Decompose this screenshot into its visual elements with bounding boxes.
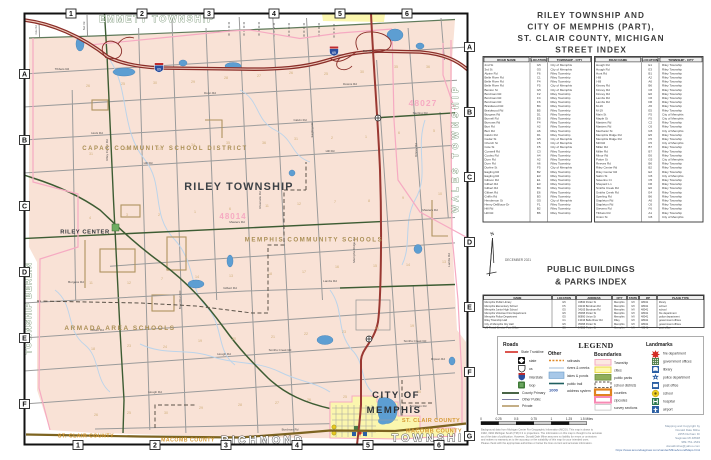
svg-text:Lambs Rd: Lambs Rd	[447, 253, 451, 267]
svg-text:Memphis Junior High School: Memphis Junior High School	[485, 307, 518, 311]
svg-text:2: 2	[158, 213, 160, 217]
svg-text:us: us	[529, 367, 533, 371]
svg-text:Smiths Creek Rd: Smiths Creek Rd	[269, 348, 292, 352]
svg-text:20: 20	[232, 337, 236, 341]
svg-text:public parks: public parks	[614, 376, 632, 380]
svg-text:ADDRESS: ADDRESS	[587, 296, 600, 300]
svg-text:fire department: fire department	[659, 311, 677, 315]
svg-text:0.5: 0.5	[514, 417, 519, 421]
svg-text:Memphis Volunteer Fire Departm: Memphis Volunteer Fire Department	[485, 311, 527, 315]
svg-text:Riley Township Hall: Riley Township Hall	[485, 318, 508, 322]
svg-text:5: 5	[433, 129, 435, 133]
svg-text:Other: Other	[548, 351, 561, 357]
svg-text:G: G	[467, 434, 473, 441]
svg-text:Private: Private	[522, 404, 533, 408]
svg-text:LOCATION: LOCATION	[557, 296, 571, 300]
svg-text:18: 18	[268, 272, 272, 276]
svg-text:48027: 48027	[409, 98, 438, 108]
svg-text:13: 13	[442, 260, 446, 264]
svg-text:Hough Rd: Hough Rd	[217, 352, 231, 356]
svg-text:Memphis: Memphis	[614, 307, 625, 311]
svg-text:MEMPHIS COMMUNITY SCHOOLS: MEMPHIS COMMUNITY SCHOOLS	[245, 237, 383, 244]
svg-text:34130 Bordman Rd: 34130 Bordman Rd	[578, 304, 601, 308]
svg-text:25: 25	[343, 395, 347, 399]
svg-text:TOWNSHIP: TOWNSHIP	[391, 433, 474, 445]
svg-text:school: school	[659, 304, 667, 308]
svg-text:Memphis: Memphis	[614, 325, 625, 329]
svg-text:STREET INDEX: STREET INDEX	[555, 46, 627, 55]
svg-text:14: 14	[406, 263, 410, 267]
svg-text:7: 7	[334, 200, 336, 204]
svg-text:29: 29	[199, 406, 203, 410]
svg-text:11: 11	[89, 281, 93, 285]
svg-text:80890 Union St: 80890 Union St	[578, 315, 596, 319]
svg-text:31: 31	[89, 152, 93, 156]
svg-text:1: 1	[69, 11, 73, 18]
svg-text:NAME: NAME	[514, 296, 522, 300]
svg-text:Lambs Rd: Lambs Rd	[323, 279, 337, 283]
svg-text:21: 21	[271, 335, 275, 339]
svg-text:G5: G5	[562, 307, 566, 311]
svg-text:City of Memphis City Hall: City of Memphis City Hall	[485, 322, 514, 326]
svg-text:government offices: government offices	[659, 322, 682, 326]
svg-text:school districts: school districts	[614, 384, 637, 388]
svg-text:8: 8	[368, 199, 370, 203]
svg-text:1992, 1994 Michigan South (TM): 1992, 1994 Michigan South (TM) 0.3 m pro…	[481, 431, 602, 435]
svg-text:government offices: government offices	[663, 360, 692, 364]
svg-text:30: 30	[164, 411, 168, 415]
svg-text:35: 35	[226, 141, 230, 145]
svg-text:Kinney Rd: Kinney Rd	[414, 143, 418, 157]
svg-text:Memphis Elementary School: Memphis Elementary School	[485, 304, 518, 308]
svg-text:17: 17	[302, 270, 306, 274]
svg-text:4: 4	[89, 216, 91, 220]
svg-text:MACOMB COUNTY: MACOMB COUNTY	[161, 438, 215, 444]
svg-text:Riverside Rd: Riverside Rd	[258, 191, 262, 209]
svg-text:Downs Rd: Downs Rd	[343, 82, 357, 86]
svg-text:G5: G5	[562, 322, 566, 326]
svg-text:G5: G5	[562, 311, 566, 315]
svg-text:5: 5	[338, 11, 342, 18]
svg-text:35095 Potter St: 35095 Potter St	[578, 311, 596, 315]
svg-text:C: C	[22, 204, 27, 211]
svg-text:A: A	[22, 72, 27, 79]
svg-text:4: 4	[295, 443, 299, 450]
svg-text:30: 30	[360, 70, 364, 74]
svg-text:PUBLIC BUILDINGS: PUBLIC BUILDINGS	[547, 264, 635, 274]
svg-text:6: 6	[437, 443, 441, 450]
svg-text:Township: Township	[614, 361, 628, 365]
svg-text:22: 22	[304, 332, 308, 336]
svg-text:F: F	[467, 370, 472, 377]
svg-text:Landmarks: Landmarks	[646, 342, 673, 348]
svg-text:school: school	[659, 307, 667, 311]
svg-text:34165 Bordman Rd: 34165 Bordman Rd	[578, 307, 601, 311]
svg-text:G5: G5	[562, 315, 566, 319]
svg-text:3: 3	[126, 213, 128, 217]
svg-text:15: 15	[373, 264, 377, 268]
svg-text:ST. CLAIR COUNTY, MICHIGAN: ST. CLAIR COUNTY, MICHIGAN	[518, 34, 665, 43]
svg-text:Memphis: Memphis	[614, 304, 625, 308]
svg-text:69: 69	[332, 51, 336, 55]
svg-text:E: E	[467, 305, 472, 312]
svg-text:13016 Belle River Rd: 13016 Belle River Rd	[578, 318, 603, 322]
svg-text:12: 12	[297, 202, 301, 206]
svg-text:G5: G5	[562, 300, 566, 304]
svg-text:13: 13	[229, 274, 233, 278]
svg-text:7: 7	[161, 277, 163, 281]
svg-text:6: 6	[405, 11, 409, 18]
svg-text:23: 23	[127, 344, 131, 348]
svg-text:MI: MI	[632, 315, 635, 319]
svg-text:US Postal Service Post Office: US Postal Service Post Office	[485, 325, 520, 329]
svg-text:6: 6	[229, 207, 231, 211]
svg-text:PLACE TYPE: PLACE TYPE	[672, 296, 689, 300]
svg-text:hospital: hospital	[663, 400, 675, 404]
svg-text:interstate: interstate	[529, 376, 543, 380]
svg-text:18: 18	[91, 347, 95, 351]
svg-text:9: 9	[402, 196, 404, 200]
svg-text:MI: MI	[632, 307, 635, 311]
svg-text:State Trunkline: State Trunkline	[521, 350, 544, 354]
svg-text:36: 36	[262, 141, 266, 145]
svg-text:35095 Potter St: 35095 Potter St	[578, 322, 596, 326]
svg-text:MI: MI	[632, 322, 635, 326]
svg-text:35: 35	[394, 65, 398, 69]
svg-text:counties: counties	[614, 391, 627, 395]
svg-text:26: 26	[289, 71, 293, 75]
svg-text:RILEY TOWNSHIP AND: RILEY TOWNSHIP AND	[537, 11, 645, 20]
svg-text:19: 19	[198, 339, 202, 343]
svg-text:1.5 Miles: 1.5 Miles	[580, 417, 593, 421]
svg-text:24: 24	[375, 326, 379, 330]
svg-text:rivers & creeks: rivers & creeks	[567, 366, 590, 370]
svg-text:27: 27	[275, 401, 279, 405]
svg-text:Boundaries: Boundaries	[594, 352, 622, 358]
svg-text:STATE: STATE	[629, 296, 638, 300]
svg-text:Hill Rd: Hill Rd	[326, 149, 335, 153]
svg-text:Cole Rd: Cole Rd	[35, 25, 38, 35]
svg-text:cities: cities	[614, 369, 622, 373]
svg-text:C1: C1	[562, 318, 566, 322]
svg-text:19: 19	[410, 324, 414, 328]
svg-text:Tibbets Rd: Tibbets Rd	[55, 67, 70, 71]
svg-text:25: 25	[121, 82, 125, 86]
svg-text:CITY OF: CITY OF	[372, 390, 420, 401]
svg-text:Calvin Rd: Calvin Rd	[293, 118, 306, 122]
svg-text:48041: 48041	[641, 315, 649, 319]
svg-text:MI: MI	[632, 325, 635, 329]
svg-text:Burt Rd: Burt Rd	[363, 49, 374, 53]
svg-text:CITY OF MEMPHIS (PART),: CITY OF MEMPHIS (PART),	[527, 23, 654, 32]
svg-text:1: 1	[365, 135, 367, 139]
svg-text:DECEMBER 2021: DECEMBER 2021	[505, 258, 531, 262]
svg-text:34830 Potter St: 34830 Potter St	[578, 300, 596, 304]
svg-text:Please check with the appropri: Please check with the appropriate author…	[481, 441, 593, 445]
svg-text:C: C	[467, 175, 472, 182]
svg-text:state: state	[529, 359, 536, 363]
svg-text:B: B	[22, 138, 27, 145]
svg-text:30: 30	[153, 81, 157, 85]
svg-text:LEGEND: LEGEND	[578, 341, 613, 350]
svg-text:Other Public: Other Public	[522, 398, 541, 402]
svg-text:LOCATION: LOCATION	[643, 58, 658, 62]
svg-text:E: E	[22, 336, 27, 343]
svg-text:0.25: 0.25	[495, 417, 501, 421]
svg-text:ARMADA AREA SCHOOLS: ARMADA AREA SCHOOLS	[64, 325, 175, 332]
svg-text:28: 28	[238, 403, 242, 407]
svg-text:48041: 48041	[641, 322, 649, 326]
svg-text:ST. CLAIR COUNTY: ST. CLAIR COUNTY	[58, 434, 114, 440]
svg-text:school: school	[663, 392, 673, 396]
svg-text:27: 27	[257, 74, 261, 78]
svg-text:B: B	[467, 110, 472, 117]
svg-text:2: 2	[140, 11, 144, 18]
svg-text:Masters Rd: Masters Rd	[422, 208, 438, 212]
svg-text:ZIP: ZIP	[646, 296, 650, 300]
svg-text:Memphis Public Library: Memphis Public Library	[485, 300, 513, 304]
svg-text:Ripson Rd: Ripson Rd	[431, 357, 445, 361]
svg-text:26: 26	[307, 398, 311, 402]
svg-text:zipcodes: zipcodes	[614, 399, 628, 403]
svg-text:RILEY CENTER: RILEY CENTER	[60, 230, 110, 236]
svg-text:24: 24	[163, 345, 167, 349]
svg-text:ROAD NAME: ROAD NAME	[497, 58, 516, 62]
svg-text:25: 25	[324, 72, 328, 76]
svg-text:CITY: CITY	[616, 296, 622, 300]
svg-text:fire department: fire department	[663, 352, 686, 356]
svg-text:48014: 48014	[219, 212, 246, 221]
svg-text:MI: MI	[632, 304, 635, 308]
svg-text:police department: police department	[659, 315, 680, 319]
svg-text:City of Memphis: City of Memphis	[662, 215, 684, 219]
svg-text:4: 4	[272, 11, 276, 18]
svg-text:14: 14	[195, 275, 199, 279]
svg-text:1.25: 1.25	[566, 417, 572, 421]
svg-text:36: 36	[426, 65, 430, 69]
svg-text:Dunn Rd: Dunn Rd	[204, 91, 216, 95]
svg-text:16: 16	[335, 265, 339, 269]
svg-text:Riley Township: Riley Township	[551, 211, 571, 215]
svg-text:Gilbert Rd: Gilbert Rd	[223, 286, 237, 290]
svg-text:0: 0	[480, 417, 482, 421]
svg-text:Sterling Rd: Sterling Rd	[413, 111, 428, 115]
svg-text:F: F	[22, 402, 27, 409]
svg-text:48041: 48041	[641, 304, 649, 308]
svg-text:Eagling Rd: Eagling Rd	[310, 122, 314, 137]
svg-text:public trail: public trail	[567, 382, 583, 386]
svg-text:Hough Rd: Hough Rd	[148, 390, 162, 394]
svg-text:County Primary: County Primary	[522, 391, 546, 395]
svg-text:1: 1	[551, 417, 553, 421]
svg-text:address system: address system	[567, 389, 591, 393]
svg-text:26: 26	[86, 84, 90, 88]
svg-text:& PARKS INDEX: & PARKS INDEX	[555, 277, 627, 287]
svg-text:airport: airport	[663, 408, 673, 412]
svg-text:12: 12	[127, 281, 131, 285]
svg-text:Riley: Riley	[614, 318, 620, 322]
svg-text:post office: post office	[663, 384, 679, 388]
svg-text:D: D	[467, 240, 472, 247]
svg-text:Hill Rd: Hill Rd	[485, 211, 494, 215]
svg-text:library: library	[663, 368, 673, 372]
svg-text:Memphis: Memphis	[614, 311, 625, 315]
svg-text:G5: G5	[562, 325, 566, 329]
svg-text:TOWNSHIP - CITY: TOWNSHIP - CITY	[557, 58, 583, 62]
svg-text:MI: MI	[632, 300, 635, 304]
svg-text:MI: MI	[632, 318, 635, 322]
svg-text:post office: post office	[659, 325, 671, 329]
svg-text:railroads: railroads	[567, 359, 580, 363]
svg-text:48041: 48041	[641, 300, 649, 304]
svg-text:TOWNSHIP - CITY: TOWNSHIP - CITY	[668, 58, 694, 62]
svg-text:48041: 48041	[641, 325, 649, 329]
svg-text:lakes & ponds: lakes & ponds	[567, 374, 589, 378]
svg-text:69: 69	[157, 67, 161, 71]
svg-text:CAPAC COMMUNITY SCHOOL DIS: CAPAC COMMUNITY SCHOOL DISTRICT	[82, 146, 248, 152]
svg-text:Background data from Michigan: Background data from Michigan Center For…	[481, 428, 594, 432]
svg-text:26: 26	[94, 413, 98, 417]
svg-text:28: 28	[224, 76, 228, 80]
svg-text:48041: 48041	[641, 311, 649, 315]
svg-text:D: D	[22, 270, 27, 277]
svg-text:Boardman Rd: Boardman Rd	[178, 290, 182, 309]
svg-text:11: 11	[265, 204, 269, 208]
svg-text:0.75: 0.75	[531, 417, 537, 421]
svg-text:MI: MI	[632, 311, 635, 315]
svg-text:Union St: Union St	[596, 215, 608, 219]
svg-text:Burgess Rd: Burgess Rd	[68, 280, 84, 284]
svg-text:Memphis: Memphis	[614, 315, 625, 319]
svg-text:2: 2	[331, 136, 333, 140]
svg-text:WALES TOWNSHIP: WALES TOWNSHIP	[451, 83, 460, 213]
svg-text:https://www.aroundsaginaw.com/: https://www.aroundsaginaw.com/vander/Mil…	[616, 448, 701, 452]
svg-text:ST. CLAIR COUNTY: ST. CLAIR COUNTY	[402, 418, 460, 424]
svg-text:1000: 1000	[549, 388, 559, 393]
svg-text:5: 5	[366, 443, 370, 450]
svg-text:1: 1	[76, 443, 80, 450]
svg-text:25: 25	[127, 411, 131, 415]
svg-text:29: 29	[191, 80, 195, 84]
svg-text:ROAD NAME: ROAD NAME	[609, 58, 628, 62]
svg-text:G5: G5	[648, 215, 652, 219]
svg-text:government offices: government offices	[659, 318, 682, 322]
svg-text:B6: B6	[537, 211, 541, 215]
svg-text:RILEY TOWNSHIP: RILEY TOWNSHIP	[184, 181, 293, 193]
svg-text:48041: 48041	[641, 318, 649, 322]
svg-text:34855 Potter St: 34855 Potter St	[578, 325, 596, 329]
svg-text:Bordman Rd: Bordman Rd	[282, 428, 299, 432]
svg-text:library: library	[659, 300, 667, 304]
svg-text:EMMETT TOWNSHIP: EMMETT TOWNSHIP	[99, 14, 215, 24]
svg-text:Smiths Creek Rd: Smiths Creek Rd	[404, 339, 427, 343]
svg-text:LOCATION: LOCATION	[531, 58, 546, 62]
svg-text:Memphis: Memphis	[614, 300, 625, 304]
svg-text:Memphis Police Department: Memphis Police Department	[485, 315, 518, 319]
svg-text:23: 23	[342, 330, 346, 334]
svg-text:A: A	[467, 45, 472, 52]
svg-text:10: 10	[438, 192, 442, 196]
svg-text:police department: police department	[663, 376, 690, 380]
svg-text:Burt Rd: Burt Rd	[83, 21, 86, 30]
svg-text:3: 3	[224, 443, 228, 450]
svg-text:loop: loop	[529, 384, 536, 388]
svg-text:survey sections: survey sections	[614, 406, 638, 410]
svg-text:6: 6	[398, 131, 400, 135]
svg-text:Hill Rd: Hill Rd	[144, 161, 153, 165]
svg-text:MEMPHIS: MEMPHIS	[367, 405, 422, 416]
svg-text:31: 31	[294, 137, 298, 141]
svg-text:and makes no warranty as to t: and makes no warranty as to the accuracy…	[481, 438, 589, 442]
svg-text:Roads: Roads	[503, 342, 519, 348]
svg-text:48041: 48041	[641, 307, 649, 311]
svg-text:Hock Rd: Hock Rd	[91, 131, 103, 135]
svg-text:1: 1	[194, 210, 196, 214]
svg-text:3: 3	[207, 11, 211, 18]
svg-text:Memphis: Memphis	[614, 322, 625, 326]
svg-text:2: 2	[153, 443, 157, 450]
svg-text:as of the date of publication.: as of the date of publication. However, …	[481, 434, 597, 438]
